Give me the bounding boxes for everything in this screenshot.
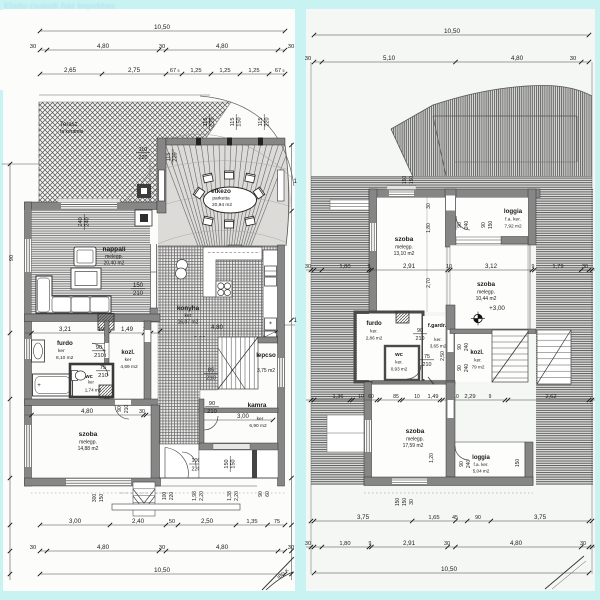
svg-text:ker.: ker. bbox=[434, 337, 441, 342]
svg-text:17,59 m2: 17,59 m2 bbox=[403, 443, 424, 449]
svg-text:90: 90 bbox=[475, 515, 481, 521]
svg-text:0,93 m2: 0,93 m2 bbox=[391, 367, 408, 372]
svg-text:150: 150 bbox=[395, 498, 401, 507]
svg-text:furdo: furdo bbox=[366, 321, 382, 327]
svg-text:2,65: 2,65 bbox=[64, 67, 77, 74]
svg-text:30: 30 bbox=[288, 44, 294, 50]
svg-text:1,80: 1,80 bbox=[339, 264, 350, 270]
svg-text:90: 90 bbox=[457, 344, 463, 350]
svg-text:ker: ker bbox=[257, 416, 264, 422]
svg-text:ker: ker bbox=[125, 357, 132, 363]
svg-text:240: 240 bbox=[85, 217, 91, 226]
svg-text:16,07 m2: 16,07 m2 bbox=[178, 320, 199, 326]
svg-text:2,75: 2,75 bbox=[128, 67, 141, 74]
svg-text:210: 210 bbox=[416, 336, 425, 342]
svg-text:10,50: 10,50 bbox=[154, 567, 170, 574]
svg-text:1,25: 1,25 bbox=[219, 68, 230, 74]
svg-text:115: 115 bbox=[230, 118, 236, 127]
svg-text:wc: wc bbox=[394, 352, 404, 358]
svg-text:ker.: ker. bbox=[474, 358, 481, 363]
svg-text:220: 220 bbox=[139, 155, 148, 161]
svg-text:30: 30 bbox=[139, 409, 145, 415]
svg-text:5,10: 5,10 bbox=[383, 55, 396, 62]
svg-text:3,75: 3,75 bbox=[357, 514, 370, 521]
svg-text:kozl.: kozl. bbox=[121, 350, 135, 356]
svg-text:4,80: 4,80 bbox=[510, 540, 523, 547]
svg-text:220: 220 bbox=[173, 152, 179, 161]
svg-text:2,86 m2: 2,86 m2 bbox=[366, 336, 383, 341]
svg-text:kozl.: kozl. bbox=[470, 350, 484, 356]
svg-text:60: 60 bbox=[265, 491, 271, 497]
svg-text:67: 67 bbox=[170, 68, 176, 74]
svg-text:konyha: konyha bbox=[177, 305, 200, 312]
svg-text:7,92 m2: 7,92 m2 bbox=[504, 224, 522, 230]
svg-text:4,69 m2: 4,69 m2 bbox=[120, 364, 138, 370]
svg-text:2,40: 2,40 bbox=[132, 518, 145, 525]
svg-text:300: 300 bbox=[92, 494, 98, 503]
svg-text:4,80: 4,80 bbox=[211, 325, 223, 331]
svg-text:30: 30 bbox=[30, 545, 36, 551]
svg-text:9: 9 bbox=[489, 394, 492, 400]
svg-text:150: 150 bbox=[224, 459, 230, 468]
svg-text:10,50: 10,50 bbox=[444, 28, 460, 35]
svg-text:kamra: kamra bbox=[248, 402, 267, 409]
svg-text:melegp.: melegp. bbox=[477, 290, 495, 296]
svg-text:90: 90 bbox=[481, 222, 487, 228]
svg-text:10: 10 bbox=[414, 394, 420, 400]
svg-text:6,90 m2: 6,90 m2 bbox=[249, 423, 267, 429]
svg-text:loggia: loggia bbox=[472, 455, 490, 461]
svg-text:parketta: parketta bbox=[212, 196, 230, 202]
svg-text:90: 90 bbox=[417, 328, 423, 334]
svg-text:150: 150 bbox=[488, 221, 494, 230]
svg-text:115: 115 bbox=[203, 118, 209, 127]
svg-text:220: 220 bbox=[210, 117, 216, 126]
svg-text:90: 90 bbox=[457, 365, 463, 371]
svg-text:ker: ker bbox=[58, 348, 65, 354]
svg-text:5,04 m2: 5,04 m2 bbox=[473, 469, 490, 474]
svg-text:1,80: 1,80 bbox=[339, 541, 350, 547]
svg-text:150: 150 bbox=[133, 283, 144, 289]
svg-text:45: 45 bbox=[452, 515, 458, 521]
svg-text:melegp.: melegp. bbox=[395, 245, 413, 251]
svg-text:9: 9 bbox=[368, 264, 371, 270]
svg-text:szoba: szoba bbox=[406, 428, 425, 435]
svg-text:3,00: 3,00 bbox=[237, 414, 249, 420]
svg-text:79 m2: 79 m2 bbox=[472, 365, 485, 370]
svg-text:1,79: 1,79 bbox=[552, 264, 563, 270]
svg-text:115: 115 bbox=[258, 118, 264, 127]
svg-text:3,65 m2: 3,65 m2 bbox=[430, 344, 447, 349]
svg-text:115: 115 bbox=[166, 153, 172, 162]
svg-text:5: 5 bbox=[178, 69, 180, 73]
svg-text:30: 30 bbox=[30, 44, 36, 50]
svg-text:3,75: 3,75 bbox=[534, 514, 547, 521]
svg-text:4,80: 4,80 bbox=[216, 43, 229, 50]
svg-text:3,21: 3,21 bbox=[59, 326, 72, 333]
svg-text:240: 240 bbox=[466, 460, 472, 469]
svg-text:2,50: 2,50 bbox=[201, 518, 214, 525]
svg-text:30: 30 bbox=[580, 541, 586, 547]
svg-text:30: 30 bbox=[305, 56, 311, 62]
svg-text:210: 210 bbox=[206, 376, 216, 382]
svg-text:9: 9 bbox=[369, 541, 372, 547]
svg-text:2,62: 2,62 bbox=[545, 394, 556, 400]
svg-text:210: 210 bbox=[124, 405, 130, 414]
svg-text:Terasz: Terasz bbox=[60, 122, 78, 128]
svg-text:2,91: 2,91 bbox=[403, 540, 416, 547]
svg-text:*: * bbox=[269, 322, 272, 329]
svg-text:50: 50 bbox=[169, 519, 175, 525]
svg-text:2,50: 2,50 bbox=[440, 351, 446, 361]
svg-text:75: 75 bbox=[274, 519, 280, 525]
svg-text:210: 210 bbox=[133, 291, 144, 297]
svg-text:szoba: szoba bbox=[477, 281, 496, 288]
svg-text:210: 210 bbox=[207, 409, 217, 415]
svg-text:3,00: 3,00 bbox=[69, 518, 82, 525]
svg-text:10: 10 bbox=[446, 264, 452, 270]
svg-text:20,40 m2: 20,40 m2 bbox=[104, 261, 125, 267]
svg-text:30: 30 bbox=[159, 44, 165, 50]
svg-text:2,20: 2,20 bbox=[234, 491, 240, 501]
svg-text:f.gardr.: f.gardr. bbox=[428, 323, 447, 329]
svg-text:ker.: ker. bbox=[370, 329, 377, 334]
svg-text:8,10 m2: 8,10 m2 bbox=[56, 355, 74, 361]
svg-text:4,80: 4,80 bbox=[97, 544, 110, 551]
svg-text:30: 30 bbox=[159, 545, 165, 551]
svg-text:150: 150 bbox=[237, 117, 243, 126]
svg-text:10,50: 10,50 bbox=[441, 566, 457, 573]
svg-text:220: 220 bbox=[265, 117, 271, 126]
svg-text:3,12: 3,12 bbox=[485, 263, 498, 270]
svg-text:2,20: 2,20 bbox=[199, 491, 205, 501]
svg-text:4,80: 4,80 bbox=[97, 43, 110, 50]
svg-text:3,75 m2: 3,75 m2 bbox=[257, 368, 275, 374]
svg-text:90: 90 bbox=[459, 461, 465, 467]
svg-text:10,50: 10,50 bbox=[154, 24, 170, 31]
svg-text:szoba: szoba bbox=[79, 431, 98, 438]
svg-text:melegp.: melegp. bbox=[105, 254, 123, 260]
svg-text:30: 30 bbox=[570, 56, 576, 62]
svg-text:85: 85 bbox=[208, 368, 214, 374]
svg-text:110: 110 bbox=[139, 147, 148, 153]
svg-text:90: 90 bbox=[258, 491, 264, 497]
svg-text:210: 210 bbox=[98, 373, 108, 379]
svg-text:85: 85 bbox=[393, 394, 399, 400]
svg-text:150: 150 bbox=[402, 176, 408, 185]
svg-text:90: 90 bbox=[96, 345, 102, 351]
svg-text:melegp.: melegp. bbox=[406, 437, 424, 443]
svg-text:75: 75 bbox=[424, 354, 430, 360]
svg-text:1,36: 1,36 bbox=[333, 394, 344, 400]
svg-text:30: 30 bbox=[582, 264, 588, 270]
svg-text:1,25: 1,25 bbox=[190, 68, 201, 74]
svg-text:4,80: 4,80 bbox=[511, 55, 524, 62]
svg-text:+: + bbox=[37, 383, 41, 389]
svg-text:1,49: 1,49 bbox=[428, 394, 439, 400]
svg-text:furdo: furdo bbox=[57, 340, 73, 347]
svg-text:90: 90 bbox=[117, 406, 123, 412]
svg-text:240: 240 bbox=[464, 343, 470, 352]
svg-text:1,65: 1,65 bbox=[428, 515, 439, 521]
svg-text:30: 30 bbox=[409, 499, 415, 505]
svg-text:150: 150 bbox=[402, 498, 408, 507]
svg-text:30: 30 bbox=[444, 541, 450, 547]
svg-text:90: 90 bbox=[9, 255, 15, 261]
svg-text:+3,00: +3,00 bbox=[489, 305, 505, 312]
svg-text:5: 5 bbox=[283, 69, 285, 73]
svg-text:szoba: szoba bbox=[395, 236, 414, 243]
svg-text:lepcso: lepcso bbox=[256, 352, 276, 359]
svg-text:fa keramia: fa keramia bbox=[60, 129, 84, 135]
svg-text:1,38: 1,38 bbox=[227, 491, 233, 501]
svg-text:30: 30 bbox=[305, 541, 311, 547]
svg-text:f.a. ker.: f.a. ker. bbox=[473, 462, 488, 467]
svg-text:nappali: nappali bbox=[102, 246, 125, 253]
svg-text:240: 240 bbox=[464, 221, 470, 230]
svg-text:4,80: 4,80 bbox=[216, 544, 229, 551]
svg-text:etkezo: etkezo bbox=[211, 188, 231, 195]
svg-text:150: 150 bbox=[409, 176, 415, 185]
svg-text:2,29: 2,29 bbox=[464, 394, 475, 400]
svg-text:30: 30 bbox=[288, 545, 294, 551]
svg-text:melegp.: melegp. bbox=[79, 440, 97, 446]
svg-text:210: 210 bbox=[94, 353, 104, 359]
svg-text:240: 240 bbox=[78, 217, 84, 226]
svg-text:210: 210 bbox=[423, 362, 432, 368]
svg-text:1,49: 1,49 bbox=[121, 326, 134, 333]
svg-text:13,10 m2: 13,10 m2 bbox=[394, 251, 415, 257]
svg-text:90: 90 bbox=[209, 401, 215, 407]
svg-text:20,94 m2: 20,94 m2 bbox=[212, 202, 232, 208]
svg-text:loggia: loggia bbox=[504, 208, 523, 215]
svg-text:10,44 m2: 10,44 m2 bbox=[476, 296, 497, 302]
svg-text:1,35: 1,35 bbox=[246, 519, 257, 525]
svg-text:240: 240 bbox=[464, 364, 470, 373]
svg-text:30: 30 bbox=[305, 264, 311, 270]
svg-text:150: 150 bbox=[231, 459, 237, 468]
svg-text:4,80: 4,80 bbox=[81, 408, 94, 415]
svg-text:2,91: 2,91 bbox=[403, 263, 416, 270]
svg-text:67: 67 bbox=[275, 68, 281, 74]
svg-text:14,88 m2: 14,88 m2 bbox=[78, 446, 99, 452]
svg-text:10: 10 bbox=[98, 327, 104, 333]
svg-text:f.a. ker.: f.a. ker. bbox=[505, 217, 521, 223]
svg-text:10: 10 bbox=[358, 394, 364, 400]
svg-text:90: 90 bbox=[457, 222, 463, 228]
svg-text:9: 9 bbox=[532, 264, 535, 270]
svg-text:60: 60 bbox=[368, 394, 374, 400]
svg-text:ker.: ker. bbox=[395, 360, 402, 365]
svg-text:1,98: 1,98 bbox=[192, 491, 198, 501]
svg-text:1,25: 1,25 bbox=[248, 68, 259, 74]
svg-text:ker: ker bbox=[88, 380, 94, 385]
svg-text:150: 150 bbox=[515, 459, 521, 468]
svg-text:ker: ker bbox=[185, 313, 192, 319]
svg-text:Elado csaladi haz kepekhez: Elado csaladi haz kepekhez bbox=[4, 1, 116, 11]
svg-text:150: 150 bbox=[99, 494, 105, 503]
svg-text:1,20: 1,20 bbox=[429, 453, 435, 463]
